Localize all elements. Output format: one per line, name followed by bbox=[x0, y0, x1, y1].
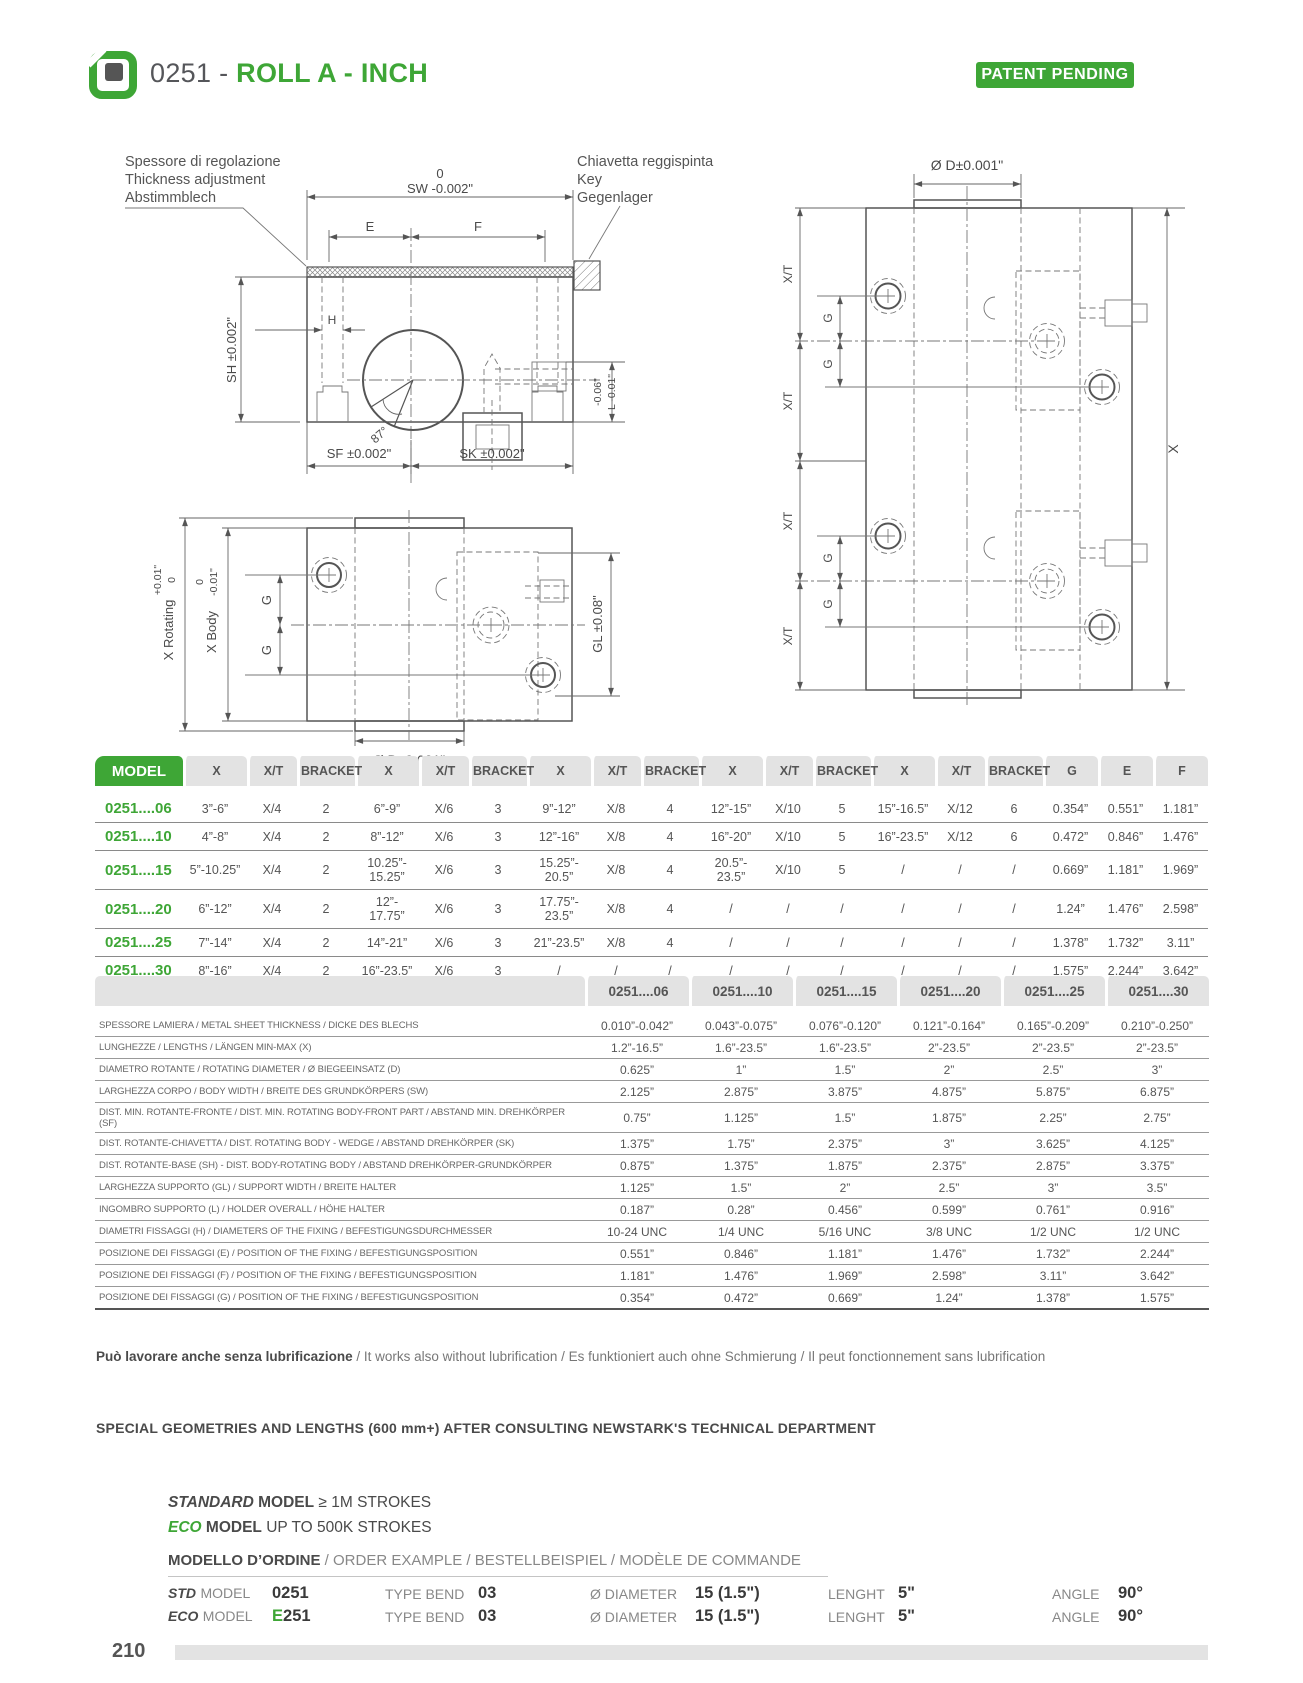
cell: 4”-8” bbox=[183, 823, 247, 851]
cell: 3 bbox=[469, 795, 527, 823]
dim-x: X bbox=[1165, 444, 1181, 454]
cell: 3 bbox=[469, 890, 527, 929]
cell: 1.476” bbox=[1098, 890, 1153, 929]
dim-e: E bbox=[366, 219, 375, 234]
cell: 1.732” bbox=[1001, 1243, 1105, 1265]
row-label: 0251....15 bbox=[95, 851, 183, 890]
cell: 1.875” bbox=[897, 1103, 1001, 1133]
cell: 3 bbox=[469, 851, 527, 890]
cell: 12”-16” bbox=[527, 823, 591, 851]
table-row: DIAMETRO ROTANTE / ROTATING DIAMETER / Ø… bbox=[95, 1059, 1209, 1081]
header-col: BRACKET bbox=[985, 756, 1043, 795]
cell: 0.472” bbox=[689, 1287, 793, 1310]
cell: / bbox=[985, 890, 1043, 929]
cell: 0.875” bbox=[585, 1155, 689, 1177]
cell: 3.11” bbox=[1153, 929, 1208, 957]
cell: 2”-23.5” bbox=[897, 1037, 1001, 1059]
table-row: DIST. ROTANTE-BASE (SH) - DIST. BODY-ROT… bbox=[95, 1155, 1209, 1177]
thickness-note-line1: Spessore di regolazione bbox=[125, 154, 281, 170]
row-label: DIST. MIN. ROTANTE-FRONTE / DIST. MIN. R… bbox=[95, 1103, 585, 1133]
std-prefix: STD bbox=[168, 1585, 196, 1601]
special-geometries-note: SPECIAL GEOMETRIES AND LENGTHS (600 mm+)… bbox=[96, 1420, 876, 1436]
thickness-note-line2: Thickness adjustment bbox=[125, 172, 265, 188]
header-col: X bbox=[355, 756, 419, 795]
cell: 2” bbox=[897, 1059, 1001, 1081]
plan-view: X Rotating +0.01" 0 X Body 0 -0.01" G G … bbox=[152, 510, 620, 768]
table-row: INGOMBRO SUPPORTO (L) / HOLDER OVERALL /… bbox=[95, 1199, 1209, 1221]
plan-body-outline bbox=[307, 528, 572, 721]
cell: 0.354” bbox=[1043, 795, 1098, 823]
header-col: 0251....15 bbox=[793, 976, 897, 1015]
row-label: POSIZIONE DEI FISSAGGI (E) / POSITION OF… bbox=[95, 1243, 585, 1265]
cell: 1.476” bbox=[897, 1243, 1001, 1265]
cell: 2.598” bbox=[897, 1265, 1001, 1287]
order-model-cell: STD MODEL bbox=[168, 1585, 272, 1603]
header-col: 0251....06 bbox=[585, 976, 689, 1015]
header-col: BRACKET bbox=[813, 756, 871, 795]
cell: 3.375” bbox=[1105, 1155, 1209, 1177]
cell: 21”-23.5” bbox=[527, 929, 591, 957]
cell: 10.25”- 15.25” bbox=[355, 851, 419, 890]
order-row-eco: ECO MODEL E251 TYPE BEND 03 Ø DIAMETER 1… bbox=[168, 1605, 1178, 1628]
angle-value: 90° bbox=[1118, 1607, 1178, 1626]
table-row: 0251....206”-12”X/4212”- 17.75”X/6317.75… bbox=[95, 890, 1208, 929]
length-label: LENGHT bbox=[828, 1609, 898, 1625]
header-col: X/T bbox=[763, 756, 813, 795]
row-label: DIAMETRO ROTANTE / ROTATING DIAMETER / Ø… bbox=[95, 1059, 585, 1081]
cell: 0.669” bbox=[793, 1287, 897, 1310]
shim-strip bbox=[307, 267, 573, 277]
cell: 3.642” bbox=[1105, 1265, 1209, 1287]
cell: 1.375” bbox=[689, 1155, 793, 1177]
type-bend-label: TYPE BEND bbox=[385, 1586, 478, 1602]
header-col: E bbox=[1098, 756, 1153, 795]
cell: 1.378” bbox=[1001, 1287, 1105, 1310]
strokes-info: STANDARD MODEL ≥ 1M STROKES ECO MODEL UP… bbox=[168, 1490, 432, 1540]
diameter-value: 15 (1.5") bbox=[695, 1584, 828, 1603]
cell: 2.375” bbox=[897, 1155, 1001, 1177]
cell: 1.6”-23.5” bbox=[793, 1037, 897, 1059]
cell: 6 bbox=[985, 795, 1043, 823]
cell: 2.875” bbox=[689, 1081, 793, 1103]
dim-x-body: X Body bbox=[204, 611, 219, 653]
cell: 2.875” bbox=[1001, 1155, 1105, 1177]
angle-value: 90° bbox=[1118, 1584, 1178, 1603]
dim-sh: SH ±0.002" bbox=[224, 317, 239, 383]
dim-x-rotating: X Rotating bbox=[161, 600, 176, 661]
cell: / bbox=[935, 929, 985, 957]
cell: 0.846” bbox=[1098, 823, 1153, 851]
key-note-line2: Key bbox=[577, 172, 603, 188]
cell: 3.875” bbox=[793, 1081, 897, 1103]
cell: 1.24” bbox=[1043, 890, 1098, 929]
order-model-cell: ECO MODEL bbox=[168, 1608, 272, 1626]
cell: 20.5”- 23.5” bbox=[699, 851, 763, 890]
cell: 5 bbox=[813, 795, 871, 823]
eco-prefix: ECO bbox=[168, 1608, 198, 1624]
model-green-part: E bbox=[272, 1607, 283, 1625]
cell: X/10 bbox=[763, 851, 813, 890]
cell: / bbox=[985, 851, 1043, 890]
lubrication-note-rest: / It works also without lubrification / … bbox=[353, 1349, 1046, 1364]
cell: 4 bbox=[641, 823, 699, 851]
hole-module bbox=[795, 271, 1147, 410]
side-body-outline bbox=[866, 208, 1132, 690]
cell: 3”-6” bbox=[183, 795, 247, 823]
cell: 2.244” bbox=[1105, 1243, 1209, 1265]
diameter-label: Ø DIAMETER bbox=[590, 1609, 695, 1625]
row-label: LARGHEZZA SUPPORTO (GL) / SUPPORT WIDTH … bbox=[95, 1177, 585, 1199]
cell: 1.375” bbox=[585, 1133, 689, 1155]
lubrication-note-bold: Può lavorare anche senza lubrificazione bbox=[96, 1349, 353, 1364]
header-col: X/T bbox=[591, 756, 641, 795]
cell: / bbox=[699, 890, 763, 929]
length-value: 5" bbox=[898, 1584, 1052, 1603]
row-label: POSIZIONE DEI FISSAGGI (F) / POSITION OF… bbox=[95, 1265, 585, 1287]
dim-sk: SK ±0.002" bbox=[459, 446, 525, 461]
order-example-heading: MODELLO D’ORDINE / ORDER EXAMPLE / BESTE… bbox=[168, 1552, 801, 1569]
cell: X/4 bbox=[247, 823, 297, 851]
cell: 1.181” bbox=[1153, 795, 1208, 823]
cell: 0.010”-0.042” bbox=[585, 1015, 689, 1037]
cell: X/8 bbox=[591, 890, 641, 929]
cell: X/4 bbox=[247, 890, 297, 929]
header-col: X bbox=[183, 756, 247, 795]
cell: 0.187” bbox=[585, 1199, 689, 1221]
dim-sw-zero: 0 bbox=[436, 166, 443, 181]
cell: 1.24” bbox=[897, 1287, 1001, 1310]
cell: 4.875” bbox=[897, 1081, 1001, 1103]
cell: X/6 bbox=[419, 795, 469, 823]
key-block bbox=[574, 261, 600, 290]
dim-x-body-tol-bottom: -0.01" bbox=[208, 568, 220, 596]
cell: 1/2 UNC bbox=[1105, 1221, 1209, 1243]
cell: 4 bbox=[641, 795, 699, 823]
dim-angle: 87° bbox=[368, 424, 391, 447]
cell: 0.28” bbox=[689, 1199, 793, 1221]
model-label: MODEL bbox=[203, 1608, 253, 1624]
dim-h: H bbox=[328, 313, 337, 327]
model-number: 0251 bbox=[272, 1584, 309, 1602]
order-row-std: STD MODEL 0251 TYPE BEND 03 Ø DIAMETER 1… bbox=[168, 1582, 1178, 1605]
table-row: 0251....104”-8”X/428”-12”X/6312”-16”X/84… bbox=[95, 823, 1208, 851]
eco-model-line: ECO MODEL UP TO 500K STROKES bbox=[168, 1515, 432, 1540]
cell: 6”-12” bbox=[183, 890, 247, 929]
header-first-col: MODEL bbox=[95, 756, 183, 795]
cell: 16”-23.5” bbox=[871, 823, 935, 851]
cell: 12”- 17.75” bbox=[355, 890, 419, 929]
cell: 0.669” bbox=[1043, 851, 1098, 890]
cell: X/4 bbox=[247, 851, 297, 890]
cell: 3” bbox=[1105, 1059, 1209, 1081]
table-row: LARGHEZZA SUPPORTO (GL) / SUPPORT WIDTH … bbox=[95, 1177, 1209, 1199]
cell: 6 bbox=[985, 823, 1043, 851]
header-col: X/T bbox=[419, 756, 469, 795]
cell: X/6 bbox=[419, 823, 469, 851]
cell: 12”-15” bbox=[699, 795, 763, 823]
cell: 4 bbox=[641, 890, 699, 929]
order-heading-rest: / ORDER EXAMPLE / BESTELLBEISPIEL / MODÈ… bbox=[321, 1552, 801, 1569]
cell: 0.75” bbox=[585, 1103, 689, 1133]
cell: 1.476” bbox=[689, 1265, 793, 1287]
cell: 14”-21” bbox=[355, 929, 419, 957]
row-label: 0251....25 bbox=[95, 929, 183, 957]
product-name: ROLL A - INCH bbox=[236, 58, 428, 88]
cell: 5”-10.25” bbox=[183, 851, 247, 890]
order-divider bbox=[168, 1576, 828, 1577]
header-col: 0251....30 bbox=[1105, 976, 1209, 1015]
dim-l: L -0.01" bbox=[606, 374, 618, 410]
cell: 2.5” bbox=[1001, 1059, 1105, 1081]
cell: X/8 bbox=[591, 929, 641, 957]
cell: 0.846” bbox=[689, 1243, 793, 1265]
header-col: BRACKET bbox=[469, 756, 527, 795]
angle-label: ANGLE bbox=[1052, 1586, 1118, 1602]
cell: 9”-12” bbox=[527, 795, 591, 823]
cell: 2” bbox=[793, 1177, 897, 1199]
order-heading-bold: MODELLO D’ORDINE bbox=[168, 1552, 321, 1569]
cell: / bbox=[935, 890, 985, 929]
row-label: DIST. ROTANTE-BASE (SH) - DIST. BODY-ROT… bbox=[95, 1155, 585, 1177]
table-row: LUNGHEZZE / LENGTHS / LÄNGEN MIN-MAX (X)… bbox=[95, 1037, 1209, 1059]
cell: X/4 bbox=[247, 929, 297, 957]
dim-f: F bbox=[474, 219, 482, 234]
cell: 3” bbox=[897, 1133, 1001, 1155]
row-label: DIST. ROTANTE-CHIAVETTA / DIST. ROTATING… bbox=[95, 1133, 585, 1155]
page-title: 0251 - ROLL A - INCH bbox=[150, 58, 428, 89]
cell: X/8 bbox=[591, 823, 641, 851]
header-col: F bbox=[1153, 756, 1208, 795]
technical-drawings: Spessore di regolazione Thickness adjust… bbox=[95, 140, 1220, 770]
cell: 3” bbox=[1001, 1177, 1105, 1199]
table-row: LARGHEZZA CORPO / BODY WIDTH / BREITE DE… bbox=[95, 1081, 1209, 1103]
cell: 0.551” bbox=[1098, 795, 1153, 823]
table-row: DIST. ROTANTE-CHIAVETTA / DIST. ROTATING… bbox=[95, 1133, 1209, 1155]
header-col: X/T bbox=[935, 756, 985, 795]
cell: X/10 bbox=[763, 823, 813, 851]
cell: 1.2”-16.5” bbox=[585, 1037, 689, 1059]
dim-x-rotating-tol-bottom: 0 bbox=[166, 577, 178, 583]
cell: X/4 bbox=[247, 795, 297, 823]
cell: 1.378” bbox=[1043, 929, 1098, 957]
cell: 6.875” bbox=[1105, 1081, 1209, 1103]
cell: 3/8 UNC bbox=[897, 1221, 1001, 1243]
cell: 3.11” bbox=[1001, 1265, 1105, 1287]
table-row: POSIZIONE DEI FISSAGGI (G) / POSITION OF… bbox=[95, 1287, 1209, 1310]
cell: 1.6”-23.5” bbox=[689, 1037, 793, 1059]
cell: 2 bbox=[297, 795, 355, 823]
diameter-label: Ø DIAMETER bbox=[590, 1586, 695, 1602]
brand-logo-icon bbox=[88, 50, 138, 100]
dim-xt: X/T bbox=[781, 511, 795, 530]
dim-g: G bbox=[821, 359, 835, 368]
dim-sf: SF ±0.002" bbox=[327, 446, 392, 461]
model-number: 251 bbox=[283, 1607, 311, 1625]
cell: 0.043”-0.075” bbox=[689, 1015, 793, 1037]
model-word: MODEL bbox=[206, 1519, 262, 1536]
diameter-value: 15 (1.5") bbox=[695, 1607, 828, 1626]
cell: / bbox=[871, 929, 935, 957]
cell: 0.165”-0.209” bbox=[1001, 1015, 1105, 1037]
cell: 2.125” bbox=[585, 1081, 689, 1103]
dim-gl: GL ±0.08" bbox=[590, 595, 605, 653]
header-col: X bbox=[527, 756, 591, 795]
cell: 17.75”- 23.5” bbox=[527, 890, 591, 929]
cell: 2.375” bbox=[793, 1133, 897, 1155]
product-code: 0251 - bbox=[150, 58, 236, 88]
cell: 1.181” bbox=[585, 1265, 689, 1287]
cell: 4.125” bbox=[1105, 1133, 1209, 1155]
cell: X/6 bbox=[419, 890, 469, 929]
table-row: 0251....063”-6”X/426”-9”X/639”-12”X/8412… bbox=[95, 795, 1208, 823]
cell: 4 bbox=[641, 929, 699, 957]
cell: 10-24 UNC bbox=[585, 1221, 689, 1243]
cell: 0.354” bbox=[585, 1287, 689, 1310]
type-bend-label: TYPE BEND bbox=[385, 1609, 478, 1625]
header-col: BRACKET bbox=[641, 756, 699, 795]
cell: / bbox=[871, 890, 935, 929]
length-value: 5" bbox=[898, 1607, 1052, 1626]
cell: 1.5” bbox=[793, 1059, 897, 1081]
model-label: MODEL bbox=[200, 1585, 250, 1601]
header-col: G bbox=[1043, 756, 1098, 795]
cell: 3.625” bbox=[1001, 1133, 1105, 1155]
angle-label: ANGLE bbox=[1052, 1609, 1118, 1625]
cell: 2.25” bbox=[1001, 1103, 1105, 1133]
cell: 1.5” bbox=[689, 1177, 793, 1199]
cell: 1” bbox=[689, 1059, 793, 1081]
order-model-value: 0251 bbox=[272, 1584, 385, 1603]
cell: X/12 bbox=[935, 823, 985, 851]
dim-x-body-tol-top: 0 bbox=[194, 579, 206, 585]
cell: 2 bbox=[297, 929, 355, 957]
key-note-line3: Gegenlager bbox=[577, 190, 653, 206]
table-row: DIAMETRI FISSAGGI (H) / DIAMETERS OF THE… bbox=[95, 1221, 1209, 1243]
row-label: 0251....10 bbox=[95, 823, 183, 851]
cell: 0.076”-0.120” bbox=[793, 1015, 897, 1037]
cell: 1/2 UNC bbox=[1001, 1221, 1105, 1243]
row-label: LARGHEZZA CORPO / BODY WIDTH / BREITE DE… bbox=[95, 1081, 585, 1103]
cell: 6”-9” bbox=[355, 795, 419, 823]
header-first-col bbox=[95, 976, 585, 1015]
dim-g: G bbox=[259, 645, 274, 655]
cell: 1.181” bbox=[1098, 851, 1153, 890]
cell: X/6 bbox=[419, 851, 469, 890]
header-col: X bbox=[699, 756, 763, 795]
cell: / bbox=[763, 929, 813, 957]
type-bend-value: 03 bbox=[478, 1584, 590, 1603]
table-row: 0251....155”-10.25”X/4210.25”- 15.25”X/6… bbox=[95, 851, 1208, 890]
type-bend-value: 03 bbox=[478, 1607, 590, 1626]
cell: X/8 bbox=[591, 851, 641, 890]
row-label: SPESSORE LAMIERA / METAL SHEET THICKNESS… bbox=[95, 1015, 585, 1037]
cell: X/12 bbox=[935, 795, 985, 823]
row-label: LUNGHEZZE / LENGTHS / LÄNGEN MIN-MAX (X) bbox=[95, 1037, 585, 1059]
cell: 16”-20” bbox=[699, 823, 763, 851]
cell: 0.599” bbox=[897, 1199, 1001, 1221]
cell: 2”-23.5” bbox=[1001, 1037, 1105, 1059]
cell: 2 bbox=[297, 851, 355, 890]
cell: 3.5” bbox=[1105, 1177, 1209, 1199]
header-col: 0251....10 bbox=[689, 976, 793, 1015]
catalog-page: 0251 - ROLL A - INCH PATENT PENDING Spes… bbox=[0, 0, 1303, 1683]
dim-g: G bbox=[821, 553, 835, 562]
side-view: Ø D±0.001" bbox=[781, 157, 1185, 706]
row-label: INGOMBRO SUPPORTO (L) / HOLDER OVERALL /… bbox=[95, 1199, 585, 1221]
header-col: BRACKET bbox=[297, 756, 355, 795]
cell: 3 bbox=[469, 929, 527, 957]
cell: / bbox=[813, 929, 871, 957]
cell: 4 bbox=[641, 851, 699, 890]
header-col: X/T bbox=[247, 756, 297, 795]
dim-g: G bbox=[821, 599, 835, 608]
dim-x-rotating-tol-top: +0.01" bbox=[152, 565, 164, 596]
table-row: 0251....257”-14”X/4214”-21”X/6321”-23.5”… bbox=[95, 929, 1208, 957]
cell: 0.210”-0.250” bbox=[1105, 1015, 1209, 1037]
cell: 15.25”- 20.5” bbox=[527, 851, 591, 890]
cell: X/6 bbox=[419, 929, 469, 957]
header-col: 0251....25 bbox=[1001, 976, 1105, 1015]
row-label: 0251....20 bbox=[95, 890, 183, 929]
dim-sw: SW -0.002" bbox=[407, 181, 473, 196]
specs-table: 0251....060251....100251....150251....20… bbox=[95, 976, 1209, 1310]
table-row: SPESSORE LAMIERA / METAL SHEET THICKNESS… bbox=[95, 1015, 1209, 1037]
cell: 1.125” bbox=[689, 1103, 793, 1133]
cell: 1.875” bbox=[793, 1155, 897, 1177]
body-outline bbox=[307, 277, 573, 422]
footer-bar bbox=[175, 1645, 1208, 1660]
cell: 5 bbox=[813, 823, 871, 851]
thickness-note-line3: Abstimmblech bbox=[125, 190, 216, 206]
cell: 0.472” bbox=[1043, 823, 1098, 851]
row-label: DIAMETRI FISSAGGI (H) / DIAMETERS OF THE… bbox=[95, 1221, 585, 1243]
cell: 15”-16.5” bbox=[871, 795, 935, 823]
cell: 0.456” bbox=[793, 1199, 897, 1221]
cell: 7”-14” bbox=[183, 929, 247, 957]
cell: 1/4 UNC bbox=[689, 1221, 793, 1243]
section-view: Spessore di regolazione Thickness adjust… bbox=[125, 154, 714, 485]
cell: X/8 bbox=[591, 795, 641, 823]
row-label: 0251....06 bbox=[95, 795, 183, 823]
dim-xt: X/T bbox=[781, 264, 795, 283]
order-model-value: E251 bbox=[272, 1607, 385, 1626]
lubrication-note: Può lavorare anche senza lubrificazione … bbox=[96, 1349, 1045, 1364]
cell: 0.551” bbox=[585, 1243, 689, 1265]
page-number: 210 bbox=[112, 1640, 145, 1663]
eco-word: ECO bbox=[168, 1519, 202, 1536]
key-note-line1: Chiavetta reggispinta bbox=[577, 154, 714, 170]
cell: 5/16 UNC bbox=[793, 1221, 897, 1243]
dim-l-top: -0.06" bbox=[592, 378, 604, 406]
cell: 1.125” bbox=[585, 1177, 689, 1199]
cell: 1.5” bbox=[793, 1103, 897, 1133]
cell: 5 bbox=[813, 851, 871, 890]
dim-xt: X/T bbox=[781, 626, 795, 645]
cell: 3 bbox=[469, 823, 527, 851]
cell: 2.5” bbox=[897, 1177, 1001, 1199]
length-label: LENGHT bbox=[828, 1586, 898, 1602]
cell: / bbox=[813, 890, 871, 929]
cell: / bbox=[871, 851, 935, 890]
cell: 1.969” bbox=[793, 1265, 897, 1287]
cell: 2 bbox=[297, 823, 355, 851]
cell: 1.75” bbox=[689, 1133, 793, 1155]
model-word: MODEL bbox=[258, 1494, 314, 1511]
standard-strokes: ≥ 1M STROKES bbox=[318, 1494, 431, 1511]
dim-xt: X/T bbox=[781, 391, 795, 410]
dim-d: Ø D±0.001" bbox=[931, 157, 1004, 173]
cell: 0.121”-0.164” bbox=[897, 1015, 1001, 1037]
